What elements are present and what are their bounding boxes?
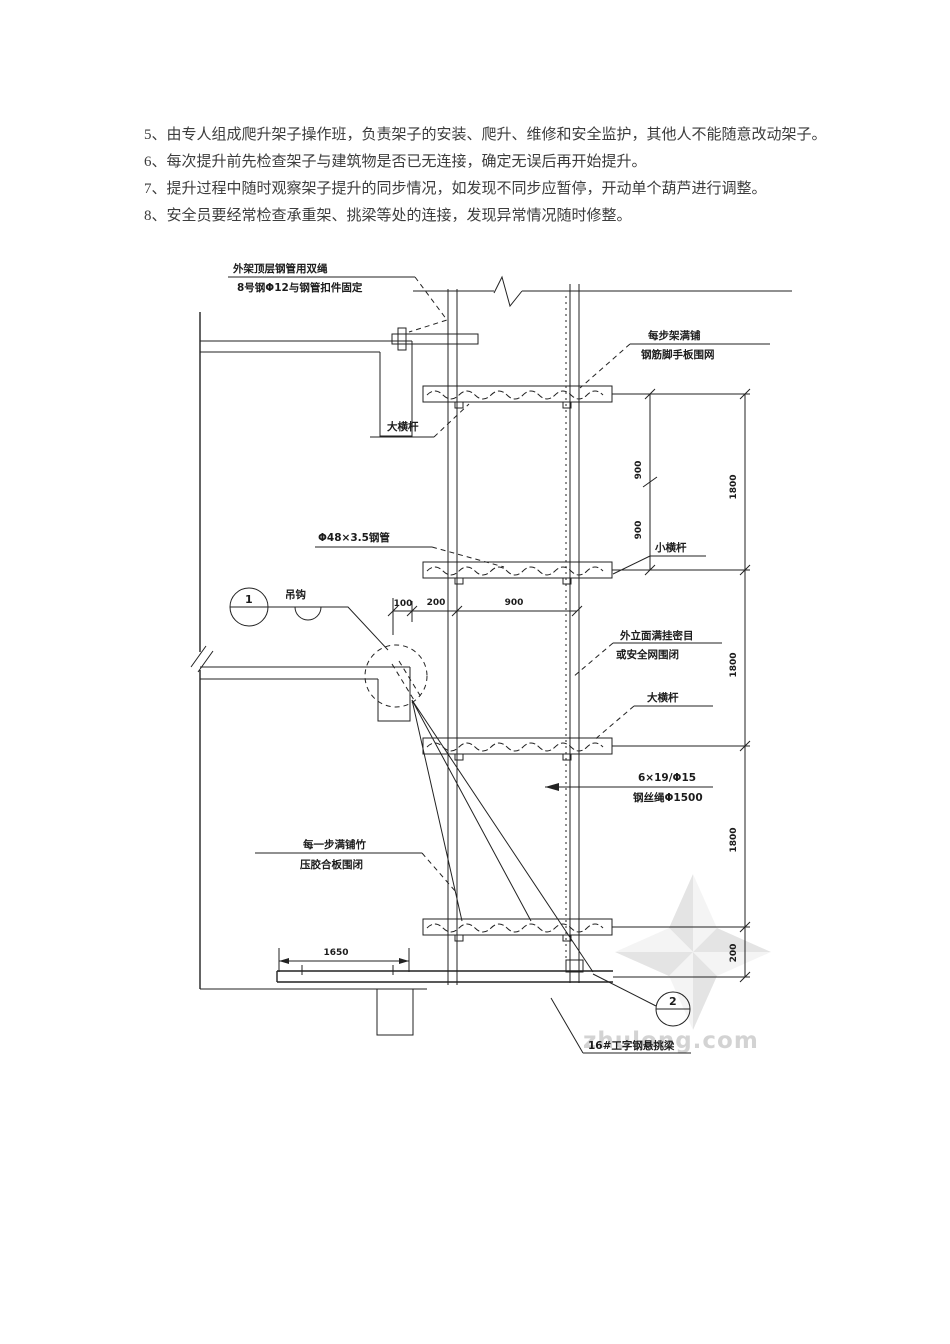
note-deck-line1: 每步架满铺	[648, 329, 701, 342]
callout-1-number: 1	[245, 593, 253, 606]
note-rope-line2: 钢丝绳Φ1500	[633, 791, 703, 804]
dim-1800-c: 1800	[729, 827, 739, 852]
callout-bubble-2: 2	[656, 992, 690, 1026]
dimension-horizontal-chain: 100 200 900	[388, 598, 582, 635]
hook-symbol	[295, 607, 321, 620]
note-steel-pipe: Φ48×3.5钢管	[318, 531, 390, 544]
scaffold-detail-drawing: zhulong.com	[0, 0, 950, 1344]
dimension-right-chain: 1800 1800 1800 200	[612, 389, 750, 982]
note-ply-line2: 压胶合板围闭	[300, 858, 363, 871]
dimension-bottom-1650: 1650	[279, 948, 409, 972]
top-floor-slab	[200, 341, 412, 436]
dim-1800-a: 1800	[729, 474, 739, 499]
dim-900-lower: 900	[634, 521, 644, 540]
note-ibeam: 16#工字钢悬挑梁	[588, 1039, 675, 1052]
callout-bubble-1: 1	[230, 588, 268, 626]
bottom-floor-slab	[200, 989, 427, 1035]
anchor-bar	[392, 328, 478, 350]
platform-1	[423, 386, 612, 408]
platform-3	[423, 738, 612, 760]
middle-floor-slab	[200, 667, 410, 721]
note-small-ledger: 小横杆	[654, 541, 687, 554]
dim-200: 200	[729, 944, 739, 963]
callout-1-leader	[268, 607, 388, 650]
platform-4	[423, 919, 612, 941]
dim-200-h: 200	[427, 598, 446, 608]
dim-1650: 1650	[323, 948, 348, 958]
dim-900-upper: 900	[634, 461, 644, 480]
dim-900-h: 900	[505, 598, 524, 608]
note-anchor-line2: 8号钢Φ12与钢管扣件固定	[237, 281, 363, 294]
watermark-logo	[615, 874, 771, 1030]
note-deck-line2: 钢筋脚手板围网	[641, 348, 715, 361]
note-hook: 吊钩	[285, 588, 306, 601]
note-big-ledger-1: 大横杆	[387, 420, 419, 433]
note-anchor-line1: 外架顶层钢管用双绳	[232, 262, 328, 275]
scaffold-pole-outer	[566, 284, 583, 983]
note-facade-line2: 或安全网围闭	[616, 648, 679, 661]
dim-1800-b: 1800	[729, 652, 739, 677]
note-facade-line1: 外立面满挂密目	[619, 629, 694, 642]
building-wall	[191, 312, 213, 989]
note-ply-line1: 每一步满铺竹	[303, 838, 366, 851]
callout-2-leader	[593, 974, 656, 1006]
hoist-detail-circle	[365, 645, 427, 707]
building-top-line	[413, 277, 792, 306]
document-page: 5、由专人组成爬升架子操作班，负责架子的安装、爬升、维修和安全监护，其他人不能随…	[0, 0, 950, 1344]
dim-100: 100	[394, 599, 413, 609]
note-rope-line1: 6×19/Φ15	[638, 772, 696, 784]
callout-2-number: 2	[669, 995, 677, 1008]
note-big-ledger-2: 大横杆	[647, 691, 679, 704]
platform-2	[423, 562, 612, 584]
cantilever-beam	[277, 965, 613, 982]
